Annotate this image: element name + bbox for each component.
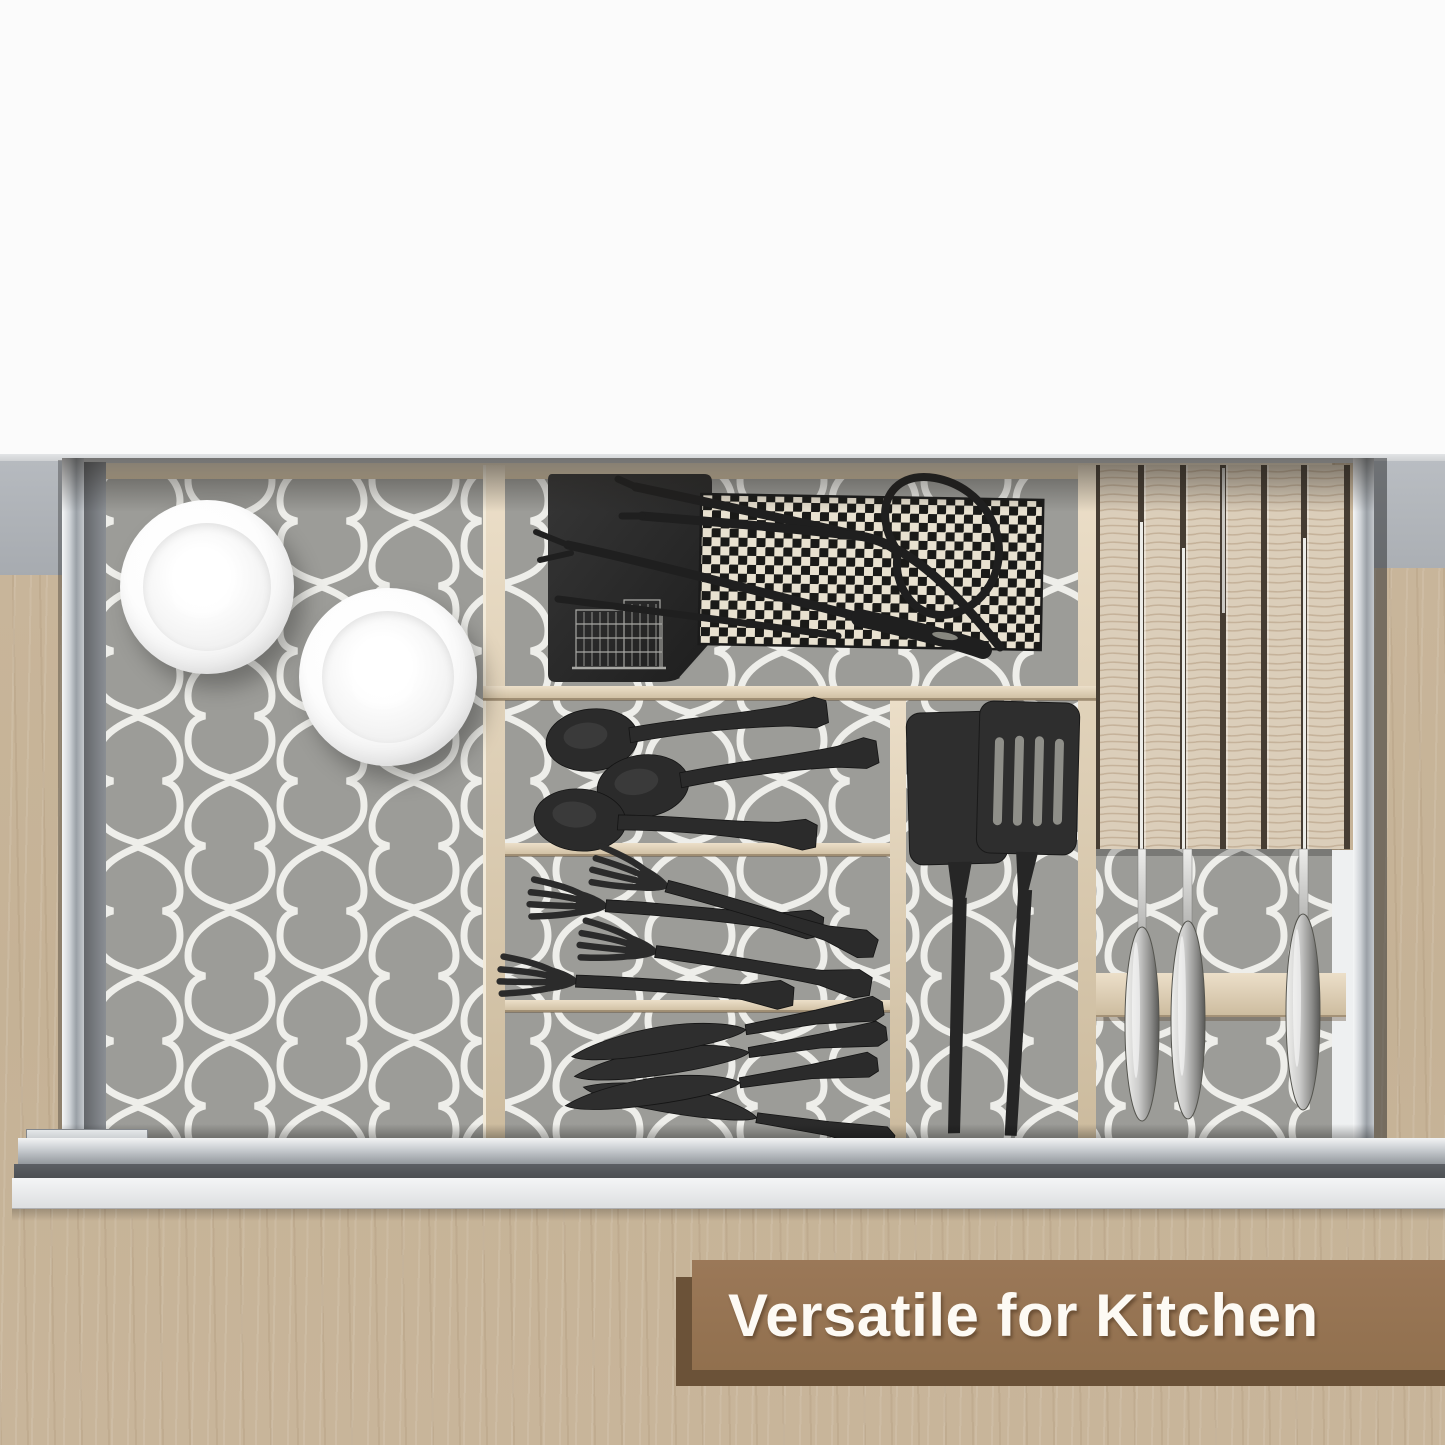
drawer-front-dark-strip — [14, 1164, 1445, 1179]
white-bowl — [299, 588, 477, 766]
knife-handle — [1286, 914, 1320, 1110]
bowl-glare — [352, 663, 413, 709]
drawer-sidewall-left — [84, 462, 106, 1138]
knife-handle — [1171, 921, 1205, 1119]
drawer-front-sill — [18, 1138, 1445, 1165]
counter-overhang-shadow — [62, 458, 1374, 512]
drawer-illustration — [0, 0, 1445, 1445]
drawer-rail-right — [1353, 458, 1374, 1140]
drawer-right-gap-shadow — [1374, 458, 1387, 1144]
knife-handle — [1125, 927, 1159, 1121]
drawer-rail-left — [62, 458, 84, 1140]
white-bowl — [120, 500, 294, 674]
drawer-front-under-shadow — [12, 1208, 1445, 1221]
banner: Versatile for Kitchen — [692, 1260, 1445, 1370]
drawer-front-panel-edge — [12, 1178, 1445, 1209]
banner-label: Versatile for Kitchen — [728, 1281, 1319, 1350]
product-photo-kitchen-drawer: Versatile for Kitchen — [0, 0, 1445, 1445]
